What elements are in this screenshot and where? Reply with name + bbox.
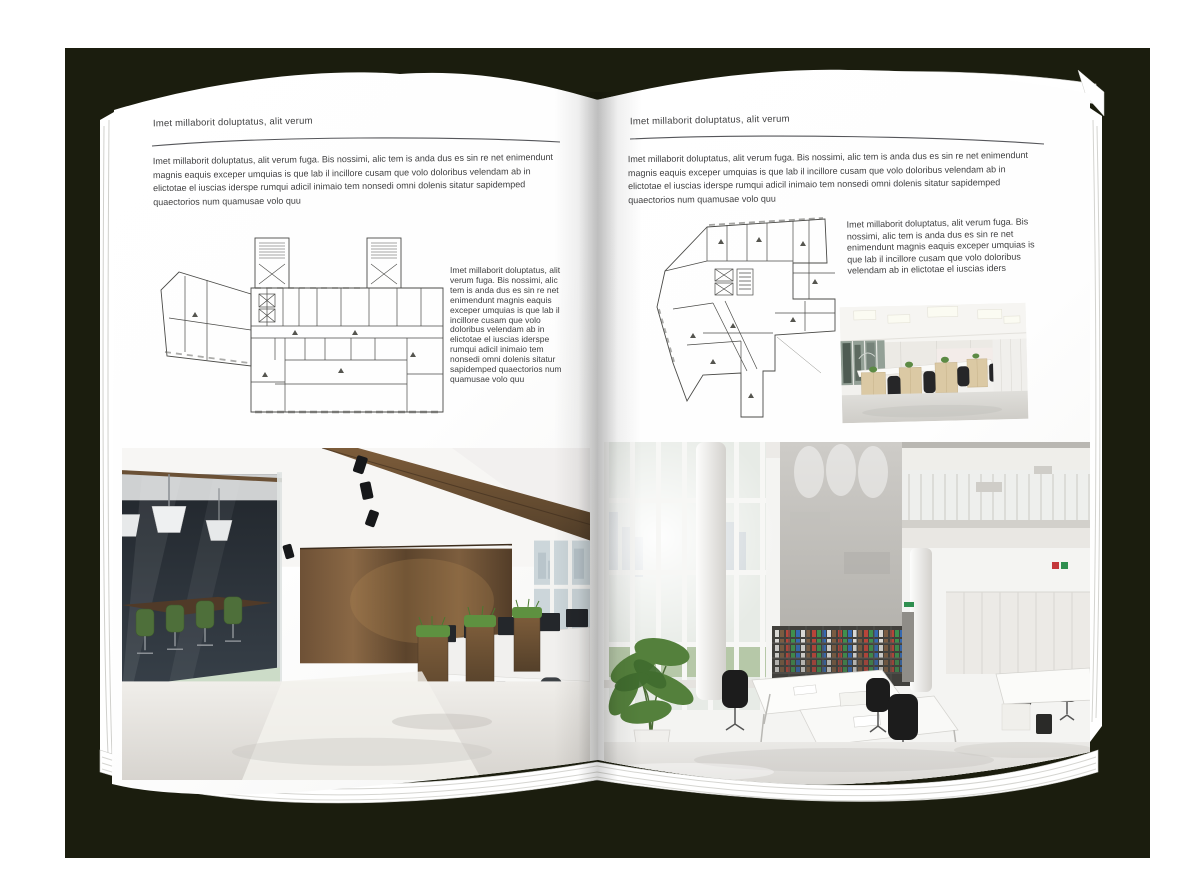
right-page: Imet millaborit doluptatus, alit verum I…: [598, 60, 1098, 800]
plan-stair-towers: [259, 243, 397, 284]
doorway: [902, 602, 914, 682]
left-page: Imet millaborit doluptatus, alit verum I…: [100, 60, 598, 800]
floor-plan-right: [643, 213, 843, 425]
floor-plan-left: [155, 232, 447, 420]
left-page-intro: Imet millaborit doluptatus, alit verum f…: [153, 151, 562, 209]
ceiling: [840, 303, 1027, 344]
magazine-mockup: Imet millaborit doluptatus, alit verum I…: [0, 0, 1200, 891]
floor: [122, 671, 590, 780]
right-header-rule: [628, 131, 1046, 147]
right-page-header: Imet millaborit doluptatus, alit verum: [630, 114, 790, 128]
right-page-intro: Imet millaborit doluptatus, alit verum f…: [628, 149, 1041, 207]
floor: [842, 391, 1029, 424]
photo-loft-office: [122, 448, 590, 780]
plan-elevator-core: [715, 269, 753, 295]
left-page-header: Imet millaborit doluptatus, alit verum: [153, 116, 313, 130]
plan-outer-walls: [657, 219, 835, 417]
plan-leader-line: [777, 337, 821, 373]
left-header-rule: [150, 133, 564, 149]
plan-door-markers: [192, 312, 416, 377]
right-page-caption: Imet millaborit doluptatus, alit verum f…: [847, 216, 1036, 277]
right-partition: [992, 339, 1027, 398]
plan-room-partitions: [169, 276, 443, 412]
photo-small-office: [840, 303, 1029, 424]
photo-atrium-office: [604, 442, 1092, 788]
mezzanine: [902, 442, 1092, 548]
concrete-wall: [780, 442, 902, 634]
left-page-caption: Imet millaborit doluptatus, alit verum f…: [450, 266, 574, 385]
plan-room-partitions: [665, 220, 835, 373]
plan-window-ticks: [165, 288, 439, 412]
column-left: [696, 442, 726, 700]
plan-outer-walls: [161, 238, 443, 412]
